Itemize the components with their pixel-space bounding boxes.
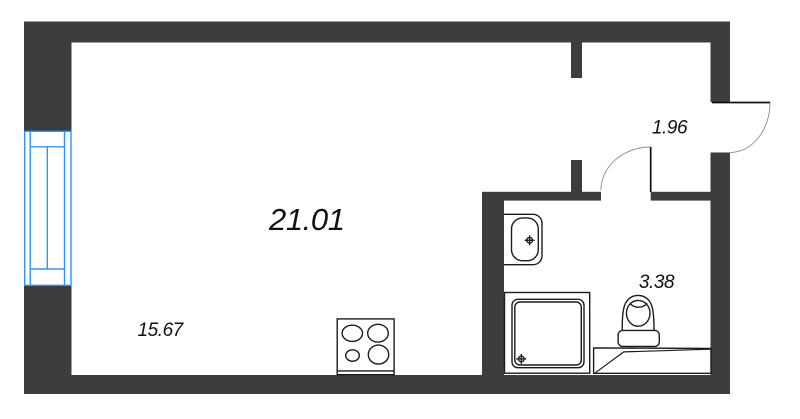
svg-text:3.38: 3.38 — [639, 272, 675, 293]
svg-text:15.67: 15.67 — [138, 320, 185, 341]
svg-text:21.01: 21.01 — [268, 202, 345, 237]
svg-text:1.96: 1.96 — [652, 117, 688, 138]
